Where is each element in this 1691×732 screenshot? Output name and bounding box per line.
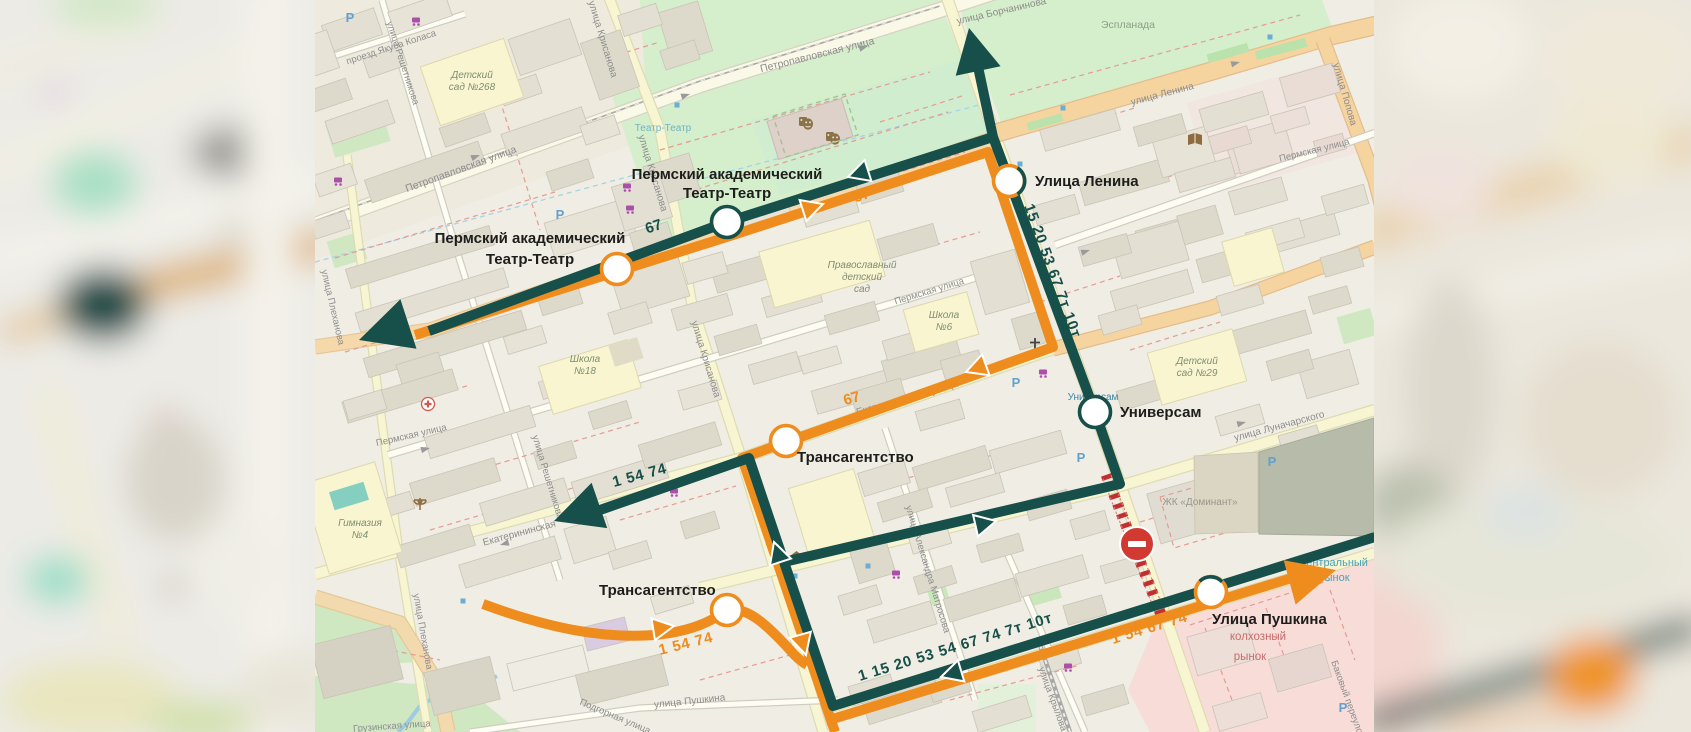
svg-text:Театр-Театр: Театр-Театр — [683, 185, 771, 202]
svg-text:Эспланада: Эспланада — [1101, 19, 1155, 31]
svg-text:Улица Пушкина: Улица Пушкина — [1212, 611, 1327, 628]
svg-text:P: P — [1339, 700, 1348, 715]
svg-text:Пермский академический: Пермский академический — [435, 230, 626, 247]
svg-text:Трансагентство: Трансагентство — [797, 449, 914, 466]
svg-text:сад №268: сад №268 — [449, 82, 496, 93]
svg-text:Гимназия: Гимназия — [338, 518, 382, 529]
svg-text:Школа: Школа — [570, 354, 601, 365]
svg-text:P: P — [556, 207, 565, 222]
svg-text:ЖК «Доминант»: ЖК «Доминант» — [1162, 497, 1237, 508]
svg-text:P: P — [1268, 454, 1277, 469]
svg-text:№18: №18 — [574, 366, 596, 377]
svg-text:сад: сад — [854, 284, 871, 295]
svg-text:№6: №6 — [936, 322, 953, 333]
svg-text:Детский: Детский — [1175, 356, 1218, 367]
svg-text:Трансагентство: Трансагентство — [599, 582, 716, 599]
svg-text:сад №29: сад №29 — [1177, 368, 1218, 379]
svg-text:P: P — [1012, 375, 1021, 390]
svg-text:колхозный: колхозный — [1230, 631, 1286, 643]
svg-text:Детский: Детский — [450, 70, 493, 81]
svg-text:рынок: рынок — [1234, 651, 1267, 663]
svg-text:Универсам: Универсам — [1120, 404, 1202, 421]
svg-text:Пермский академический: Пермский академический — [632, 166, 823, 183]
svg-text:P: P — [346, 10, 355, 25]
svg-text:Театр-Театр: Театр-Театр — [486, 251, 574, 268]
svg-text:Улица Ленина: Улица Ленина — [1035, 173, 1139, 190]
svg-text:Театр-Театр: Театр-Театр — [635, 123, 692, 134]
svg-text:№4: №4 — [352, 530, 369, 541]
svg-text:детский: детский — [842, 272, 882, 283]
svg-text:Школа: Школа — [929, 310, 960, 321]
svg-text:Православный: Православный — [828, 260, 897, 271]
svg-text:P: P — [1077, 450, 1086, 465]
